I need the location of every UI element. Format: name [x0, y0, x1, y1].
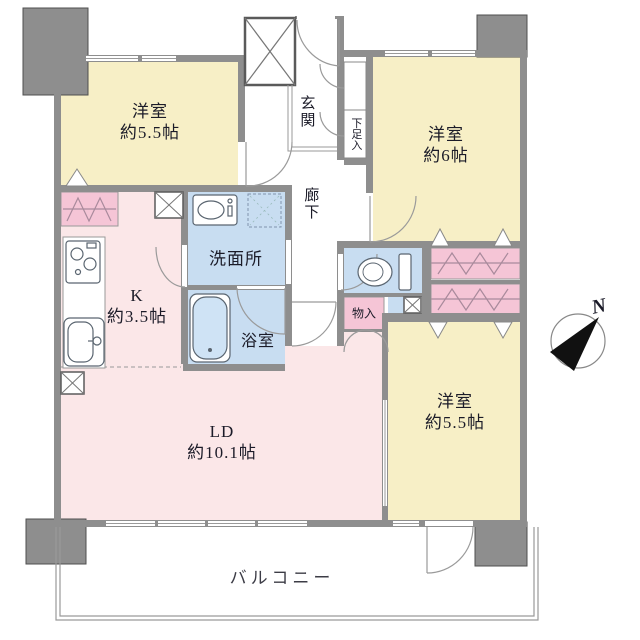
room-name: LD: [187, 421, 257, 442]
pipe-space-icon: [61, 372, 84, 394]
room-label-living-dining: LD 約10.1帖: [187, 421, 257, 464]
stove-icon: [66, 241, 100, 283]
room-name: K: [107, 285, 167, 306]
hall-ld-door-arc: [292, 302, 336, 346]
room-label-bathroom: 浴室: [241, 332, 275, 352]
room-label-corridor: 廊下: [301, 187, 320, 221]
entry-door-arc: [297, 20, 339, 66]
vanity-sink-icon: [193, 195, 237, 225]
shoe-cabinet-upper-box: [344, 62, 366, 110]
bedroom-tl-door-arc: [246, 142, 292, 186]
room-label-washroom: 洗面所: [209, 248, 263, 269]
room-name: 洋室: [425, 391, 485, 412]
room-name: 洋室: [120, 101, 180, 122]
elevator-shaft-icon: [245, 18, 295, 85]
kitchen-sink-icon: [64, 318, 104, 366]
room-label-bedroom-top-right: 洋室 約6帖: [423, 124, 469, 167]
bathtub-icon: [190, 294, 230, 362]
floor-plan-drawing: [0, 0, 640, 640]
label-balcony: バルコニー: [230, 567, 335, 588]
label-storage: 物入: [352, 307, 376, 322]
pipe-space-icon: [404, 297, 421, 313]
room-size: 約6帖: [423, 145, 469, 166]
room-size: 約5.5帖: [120, 122, 180, 143]
pillar-bottom-right: [475, 522, 527, 566]
pipe-space-icon: [155, 192, 183, 218]
room-label-bedroom-top-left: 洋室 約5.5帖: [120, 101, 180, 144]
room-name: 洋室: [423, 124, 469, 145]
floor-plan: 洋室 約5.5帖 洋室 約6帖 洋室 約5.5帖 LD 約10.1帖 K 約3.…: [0, 0, 640, 640]
room-label-kitchen: K 約3.5帖: [107, 285, 167, 328]
room-size: 約10.1帖: [187, 442, 257, 463]
balcony-door-arc: [427, 527, 473, 573]
compass-icon: [550, 314, 605, 371]
toilet-nook-floor: [388, 295, 404, 313]
room-size: 約3.5帖: [107, 306, 167, 327]
room-label-bedroom-bottom-right: 洋室 約5.5帖: [425, 391, 485, 434]
room-label-entrance: 玄関: [297, 95, 316, 129]
label-shoe-cabinet: 下足入: [348, 118, 362, 151]
room-size: 約5.5帖: [425, 412, 485, 433]
